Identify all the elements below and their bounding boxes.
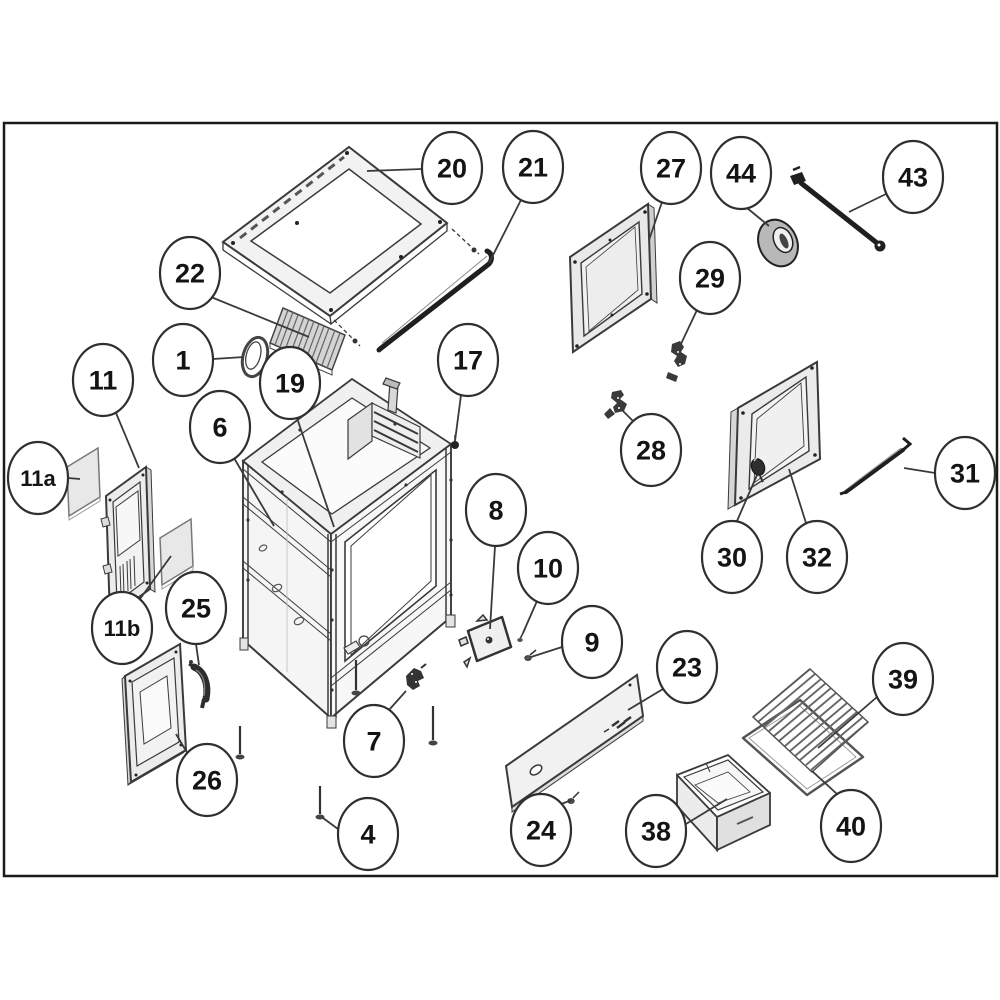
callout-label: 11 bbox=[89, 366, 118, 396]
callout-24: 24 bbox=[511, 794, 571, 866]
callout-label: 28 bbox=[636, 436, 666, 466]
exploded-diagram-canvas: 20212211961727444329281111a11b2526303231… bbox=[0, 0, 1000, 1000]
callout-label: 39 bbox=[888, 665, 918, 695]
callout-label: 31 bbox=[950, 459, 980, 489]
callout-19: 19 bbox=[260, 347, 320, 419]
callout-label: 6 bbox=[212, 413, 227, 443]
callout-6: 6 bbox=[190, 391, 250, 463]
callout-39: 39 bbox=[873, 643, 933, 715]
callout-label: 22 bbox=[175, 259, 205, 289]
callout-9: 9 bbox=[562, 606, 622, 678]
callout-label: 25 bbox=[181, 594, 211, 624]
callout-20: 20 bbox=[422, 132, 482, 204]
callout-label: 23 bbox=[672, 653, 702, 683]
callout-label: 1 bbox=[175, 346, 190, 376]
callout-27: 27 bbox=[641, 132, 701, 204]
callout-label: 20 bbox=[437, 154, 467, 184]
callout-label: 8 bbox=[488, 496, 503, 526]
callout-label: 27 bbox=[656, 154, 686, 184]
callout-22: 22 bbox=[160, 237, 220, 309]
callout-label: 24 bbox=[526, 816, 556, 846]
callout-7: 7 bbox=[344, 705, 404, 777]
callout-label: 44 bbox=[726, 159, 756, 189]
callout-32: 32 bbox=[787, 521, 847, 593]
callout-label: 19 bbox=[275, 369, 305, 399]
callout-label: 11a bbox=[20, 466, 56, 491]
callout-10: 10 bbox=[518, 532, 578, 604]
callout-11: 11 bbox=[73, 344, 133, 416]
callout-11a: 11a bbox=[8, 442, 68, 514]
leader-line-11a bbox=[68, 478, 80, 479]
callout-26: 26 bbox=[177, 744, 237, 816]
callout-label: 43 bbox=[898, 163, 928, 193]
callout-label: 17 bbox=[453, 346, 483, 376]
callout-11b: 11b bbox=[92, 592, 152, 664]
callout-label: 9 bbox=[584, 628, 599, 658]
callout-8: 8 bbox=[466, 474, 526, 546]
callout-label: 29 bbox=[695, 264, 725, 294]
callout-label: 26 bbox=[192, 766, 222, 796]
callout-label: 21 bbox=[518, 153, 548, 183]
callout-25: 25 bbox=[166, 572, 226, 644]
callout-44: 44 bbox=[711, 137, 771, 209]
callout-30: 30 bbox=[702, 521, 762, 593]
callout-23: 23 bbox=[657, 631, 717, 703]
callout-label: 4 bbox=[360, 820, 375, 850]
callout-label: 7 bbox=[366, 727, 381, 757]
callout-label: 10 bbox=[533, 554, 563, 584]
parts-diagram-page: 20212211961727444329281111a11b2526303231… bbox=[0, 0, 1000, 1000]
callout-1: 1 bbox=[153, 324, 213, 396]
callout-38: 38 bbox=[626, 795, 686, 867]
callout-label: 40 bbox=[836, 812, 866, 842]
callout-21: 21 bbox=[503, 131, 563, 203]
callout-31: 31 bbox=[935, 437, 995, 509]
callout-29: 29 bbox=[680, 242, 740, 314]
callout-label: 11b bbox=[104, 616, 141, 641]
callout-label: 38 bbox=[641, 817, 671, 847]
callout-43: 43 bbox=[883, 141, 943, 213]
callout-40: 40 bbox=[821, 790, 881, 862]
callout-label: 32 bbox=[802, 543, 832, 573]
callout-17: 17 bbox=[438, 324, 498, 396]
callout-28: 28 bbox=[621, 414, 681, 486]
callout-4: 4 bbox=[338, 798, 398, 870]
callout-label: 30 bbox=[717, 543, 747, 573]
